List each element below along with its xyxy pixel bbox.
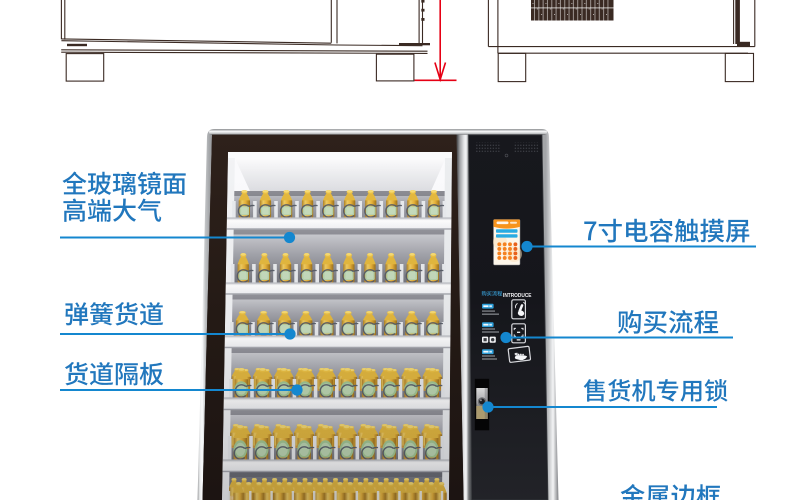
svg-text:INTRODUCE: INTRODUCE	[503, 293, 532, 299]
